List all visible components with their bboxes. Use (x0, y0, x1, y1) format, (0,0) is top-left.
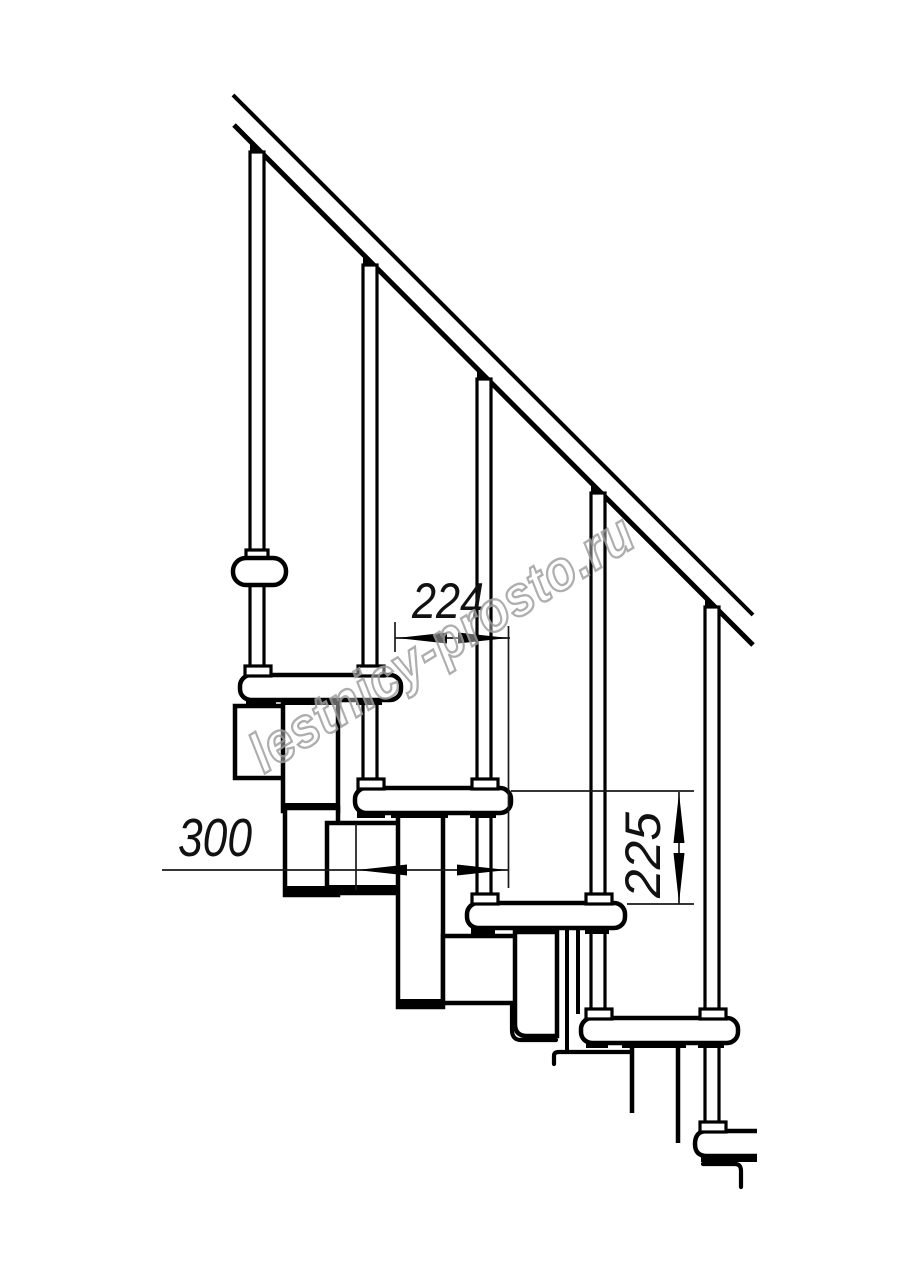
module-box (398, 813, 443, 1007)
baluster-collar (586, 894, 612, 904)
module-box (515, 932, 557, 1036)
baluster-collar (472, 894, 498, 904)
module-hook (554, 1052, 631, 1064)
tread-2 (355, 779, 511, 818)
module-box (443, 936, 518, 1003)
baluster-collar (700, 1122, 726, 1132)
handrail (233, 95, 753, 645)
baluster-collar (245, 666, 271, 676)
tread-3 (467, 894, 625, 934)
dimension-225-label: 225 (615, 812, 671, 899)
baluster-5 (705, 597, 719, 1128)
baluster-collar (700, 1009, 726, 1019)
arrow-up-icon (674, 793, 685, 843)
baluster-collar (586, 1009, 612, 1019)
staircase-technical-drawing: 224 300 225 lestnicy-prosto.ru (0, 0, 914, 1280)
module-hook (703, 1164, 741, 1187)
watermark-text: lestnicy-prosto.ru (237, 501, 645, 785)
tread-5 (695, 1122, 757, 1162)
baluster-collar (472, 779, 498, 789)
arrow-down-icon (674, 853, 685, 903)
baluster-1 (250, 142, 264, 672)
tread-4 (581, 1009, 738, 1048)
dimension-300-label: 300 (178, 808, 252, 868)
module-box (327, 823, 402, 893)
baluster-collar (358, 779, 384, 789)
upper-bracket (233, 550, 286, 585)
staircase-drawing-svg: 224 300 225 lestnicy-prosto.ru (0, 0, 914, 1280)
